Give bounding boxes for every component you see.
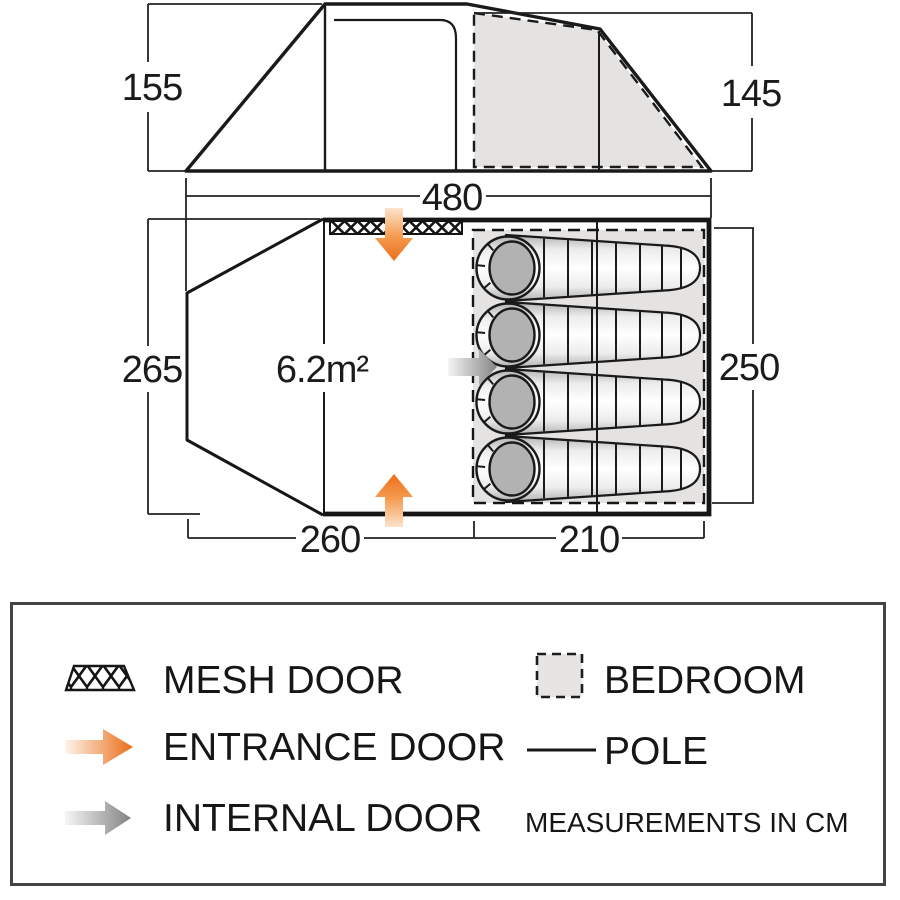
elevation-inner-door-outline [334, 20, 456, 170]
living-area-label: 6.2m² [276, 349, 368, 391]
legend-bedroom-label: BEDROOM [604, 661, 806, 701]
sleeping-bag-opening [490, 376, 535, 429]
legend-mesh-door-label: MESH DOOR [163, 661, 404, 701]
dim-480-label: 480 [422, 177, 482, 219]
sleeping-bag-hood-spoke [477, 399, 485, 400]
entrance-door-icon [63, 724, 137, 770]
sleeping-bag-hood-spoke [477, 466, 485, 467]
legend-entrance-door-label: ENTRANCE DOOR [163, 728, 505, 768]
dim-250-label: 250 [719, 347, 779, 389]
dim-265-label: 265 [122, 349, 182, 391]
legend-pole-label: POLE [604, 732, 708, 772]
dim-210-label: 210 [559, 519, 619, 561]
legend-box: MESH DOOR ENTRANCE DOOR INTERNAL DOOR [10, 602, 886, 886]
diagram-canvas: 155 145 480 [0, 0, 900, 570]
bedroom-icon [534, 651, 586, 701]
dim-145-label: 145 [721, 73, 781, 115]
dim-155-label: 155 [122, 67, 182, 109]
measurements-note: MEASUREMENTS IN CM [525, 808, 849, 838]
mesh-door-icon [63, 664, 137, 694]
pole-icon [524, 745, 600, 755]
entrance-door-arrow-bottom [375, 474, 413, 527]
tent-dimensions-diagram: 155 145 480 [0, 0, 900, 900]
dim-bottom-lines [188, 519, 704, 538]
elevation-bedroom-area [474, 13, 702, 167]
legend-internal-door-label: INTERNAL DOOR [163, 799, 482, 839]
sleeping-bag-hood-spoke [477, 265, 485, 266]
internal-door-icon [63, 798, 137, 838]
sleeping-bag-opening [490, 242, 535, 295]
floor-plan-view: 6.2m² 265 250 [122, 208, 779, 561]
sleeping-bag-opening [490, 443, 535, 496]
sleeping-bag-hood-spoke [477, 332, 485, 333]
sleeping-bag-opening [490, 309, 535, 362]
dim-260-label: 260 [300, 519, 360, 561]
